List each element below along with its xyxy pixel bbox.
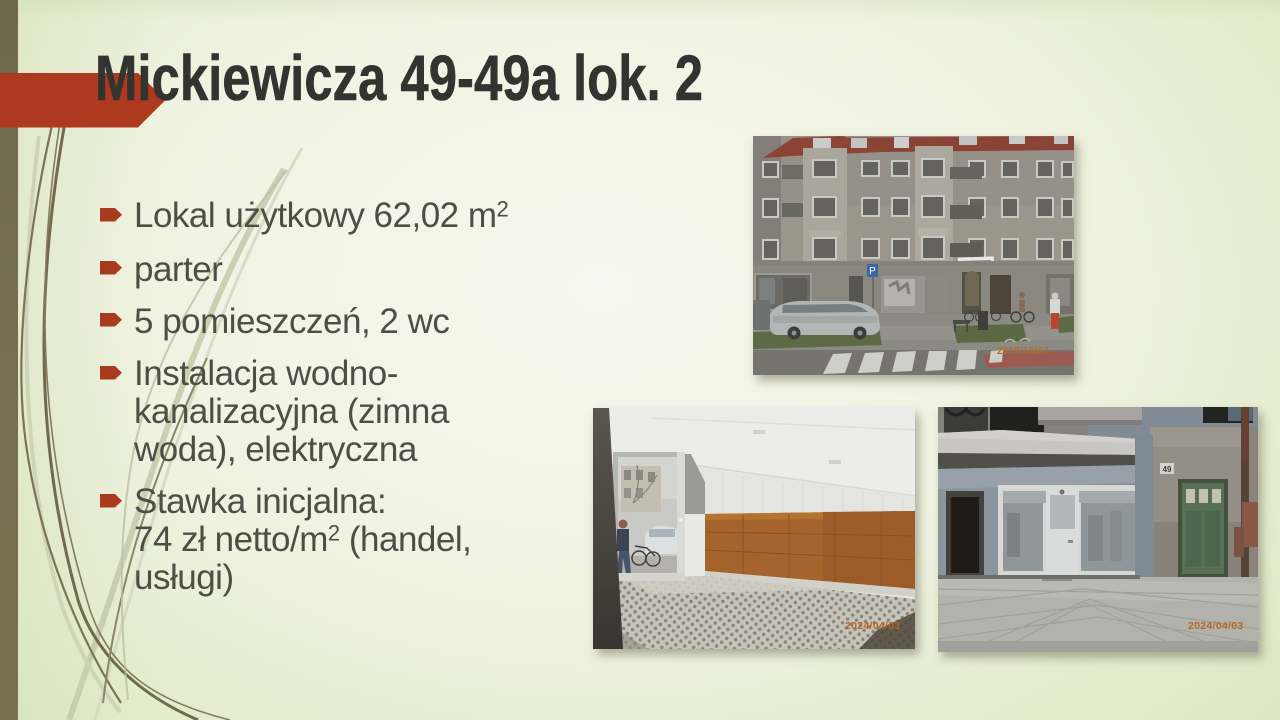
svg-text:2024/04/03: 2024/04/03 [845, 620, 901, 632]
svg-text:2024/04/03: 2024/04/03 [1188, 620, 1244, 632]
svg-text:2019/10/07: 2019/10/07 [997, 346, 1049, 357]
svg-text:P: P [869, 266, 876, 277]
svg-text:49: 49 [1163, 465, 1172, 474]
